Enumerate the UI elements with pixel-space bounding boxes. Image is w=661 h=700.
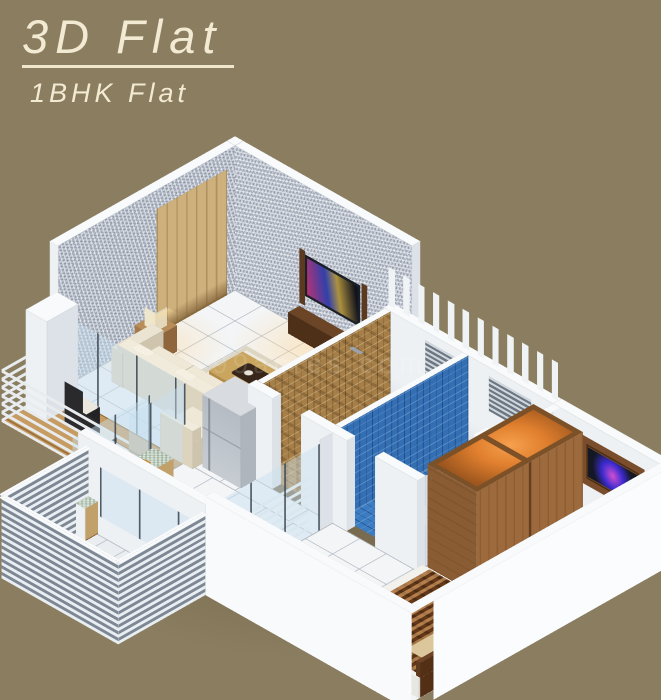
bedroom-west-wall-stub	[320, 432, 333, 530]
page-title: 3D Flat	[22, 12, 234, 61]
title-underline	[22, 65, 234, 68]
page-subtitle: 1BHK Flat	[30, 78, 234, 109]
title-block: 3D Flat 1BHK Flat	[22, 12, 234, 109]
armchair-backrest	[193, 427, 201, 470]
doorjamb	[347, 436, 355, 531]
wall-endcap	[417, 476, 425, 571]
flat-render-canvas: 3D Flat 1BHK Flat 99acres.com	[0, 0, 661, 700]
